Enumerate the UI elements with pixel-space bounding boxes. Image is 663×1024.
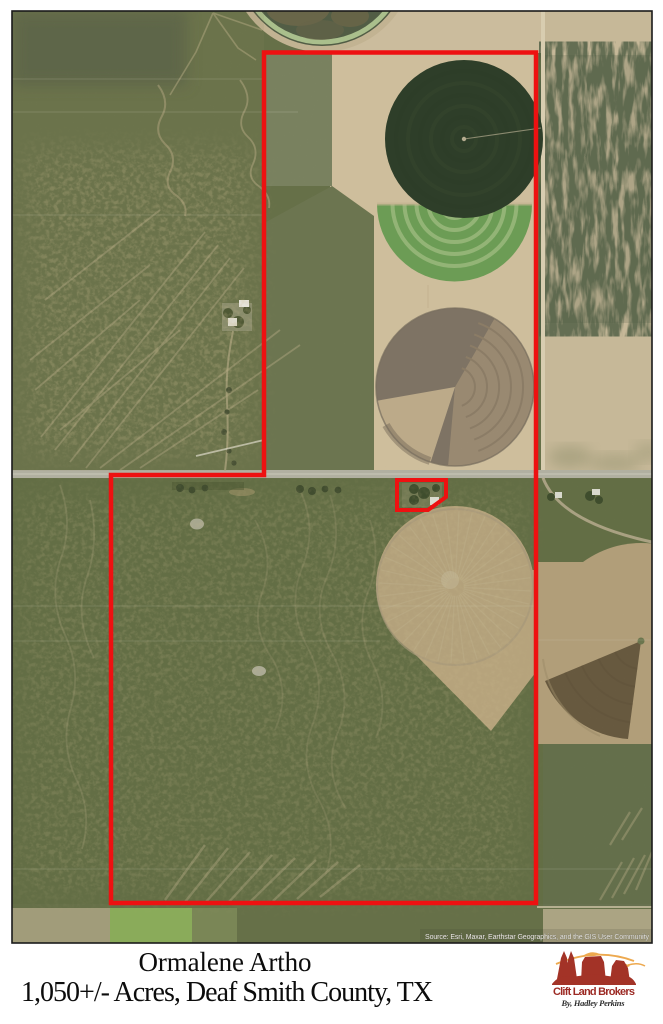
svg-text:Clift Land Brokers: Clift Land Brokers: [553, 986, 635, 998]
svg-text:Ormalene Artho: Ormalene Artho: [139, 947, 312, 977]
svg-text:1,050+/- Acres, Deaf Smith Cou: 1,050+/- Acres, Deaf Smith County, TX: [21, 977, 433, 1008]
svg-text:By, Hadley Perkins: By, Hadley Perkins: [561, 998, 626, 1008]
svg-text:Source: Esri, Maxar, Earthstar: Source: Esri, Maxar, Earthstar Geographi…: [425, 934, 650, 941]
